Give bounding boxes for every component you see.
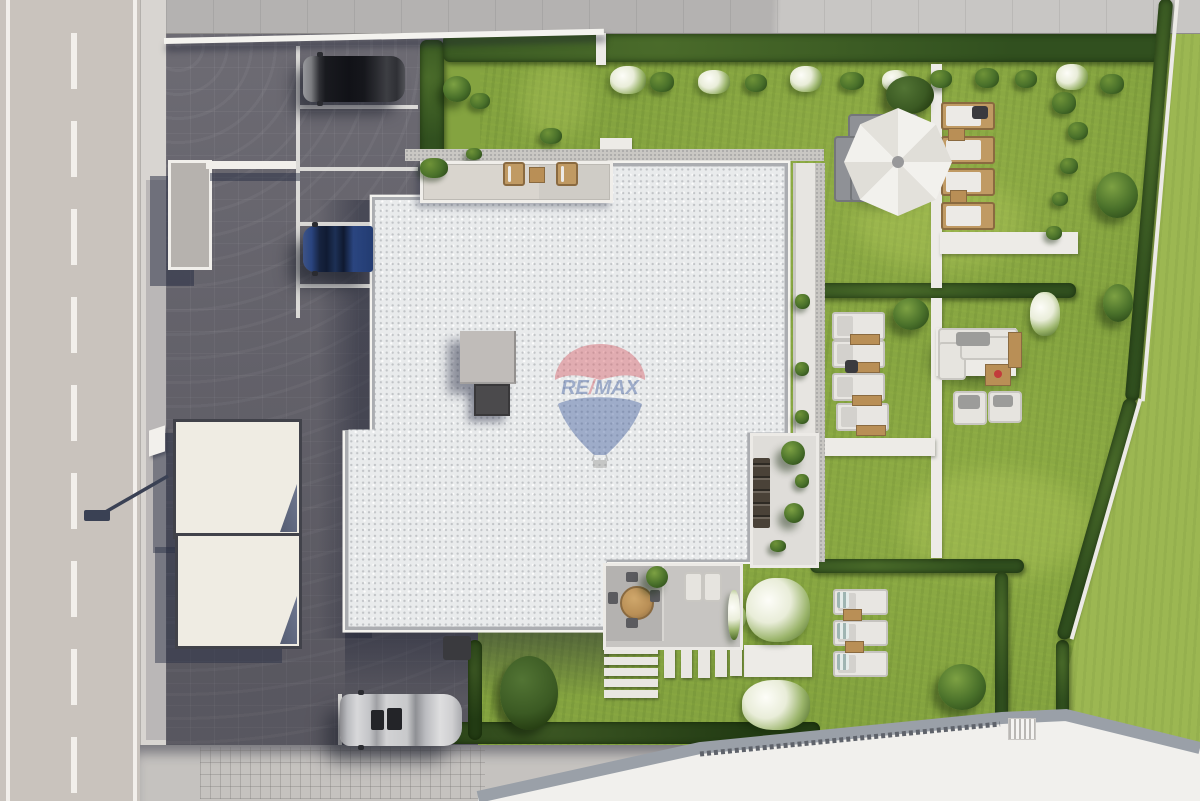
car-mirror — [358, 745, 364, 750]
dining-chair — [626, 572, 638, 582]
car-dark-suv — [303, 56, 405, 102]
car-blue — [303, 226, 373, 272]
lg-wood — [556, 162, 578, 186]
lg-wood — [503, 162, 525, 186]
balloon-bottom — [558, 397, 642, 455]
terrace-flower-bed — [728, 590, 740, 640]
tree — [781, 441, 805, 465]
garage-roof-lower — [175, 533, 302, 649]
bush — [795, 410, 809, 424]
rooftop-access-box — [460, 331, 516, 384]
car-mirror — [317, 52, 323, 57]
roof-wedge — [280, 484, 297, 532]
balloon-top — [555, 344, 645, 380]
dining-chair — [608, 592, 618, 604]
bush — [770, 540, 786, 552]
car-mirror — [317, 101, 323, 106]
car-silver — [340, 694, 462, 746]
boundary-wall — [206, 161, 296, 169]
dining-chair — [650, 590, 660, 602]
site-plan-rendering: RE/MAX — [0, 0, 1200, 801]
neighbor-roof-bottom — [420, 700, 1200, 801]
remax-balloon-watermark: RE/MAX — [548, 342, 652, 468]
dining-table — [620, 586, 654, 620]
rooftop-vent — [474, 384, 510, 416]
terrace-chair — [684, 572, 703, 602]
roof-wedge — [280, 596, 297, 644]
balloon-basket — [593, 460, 607, 468]
street-lamp — [80, 464, 180, 528]
garage-roof-upper — [173, 419, 302, 539]
car-sunroof — [387, 708, 402, 730]
terrace-bottom — [603, 563, 743, 650]
tbl-wood — [529, 167, 545, 183]
car-sunroof — [371, 710, 384, 730]
dining-chair — [626, 618, 638, 628]
bush — [795, 362, 809, 376]
street-sign — [149, 425, 165, 456]
bush — [420, 158, 448, 178]
dark-chairs — [753, 458, 770, 528]
bush — [795, 294, 810, 309]
entrance-canopy — [168, 160, 212, 270]
car-mirror — [358, 690, 364, 695]
tree — [784, 503, 804, 523]
bush — [795, 474, 809, 488]
car-mirror — [312, 222, 318, 227]
terrace-tree — [646, 566, 668, 588]
terrace-chair — [703, 572, 722, 602]
grate — [1008, 718, 1036, 740]
car-mirror — [312, 271, 318, 276]
remax-logo-text: RE/MAX — [561, 377, 640, 399]
